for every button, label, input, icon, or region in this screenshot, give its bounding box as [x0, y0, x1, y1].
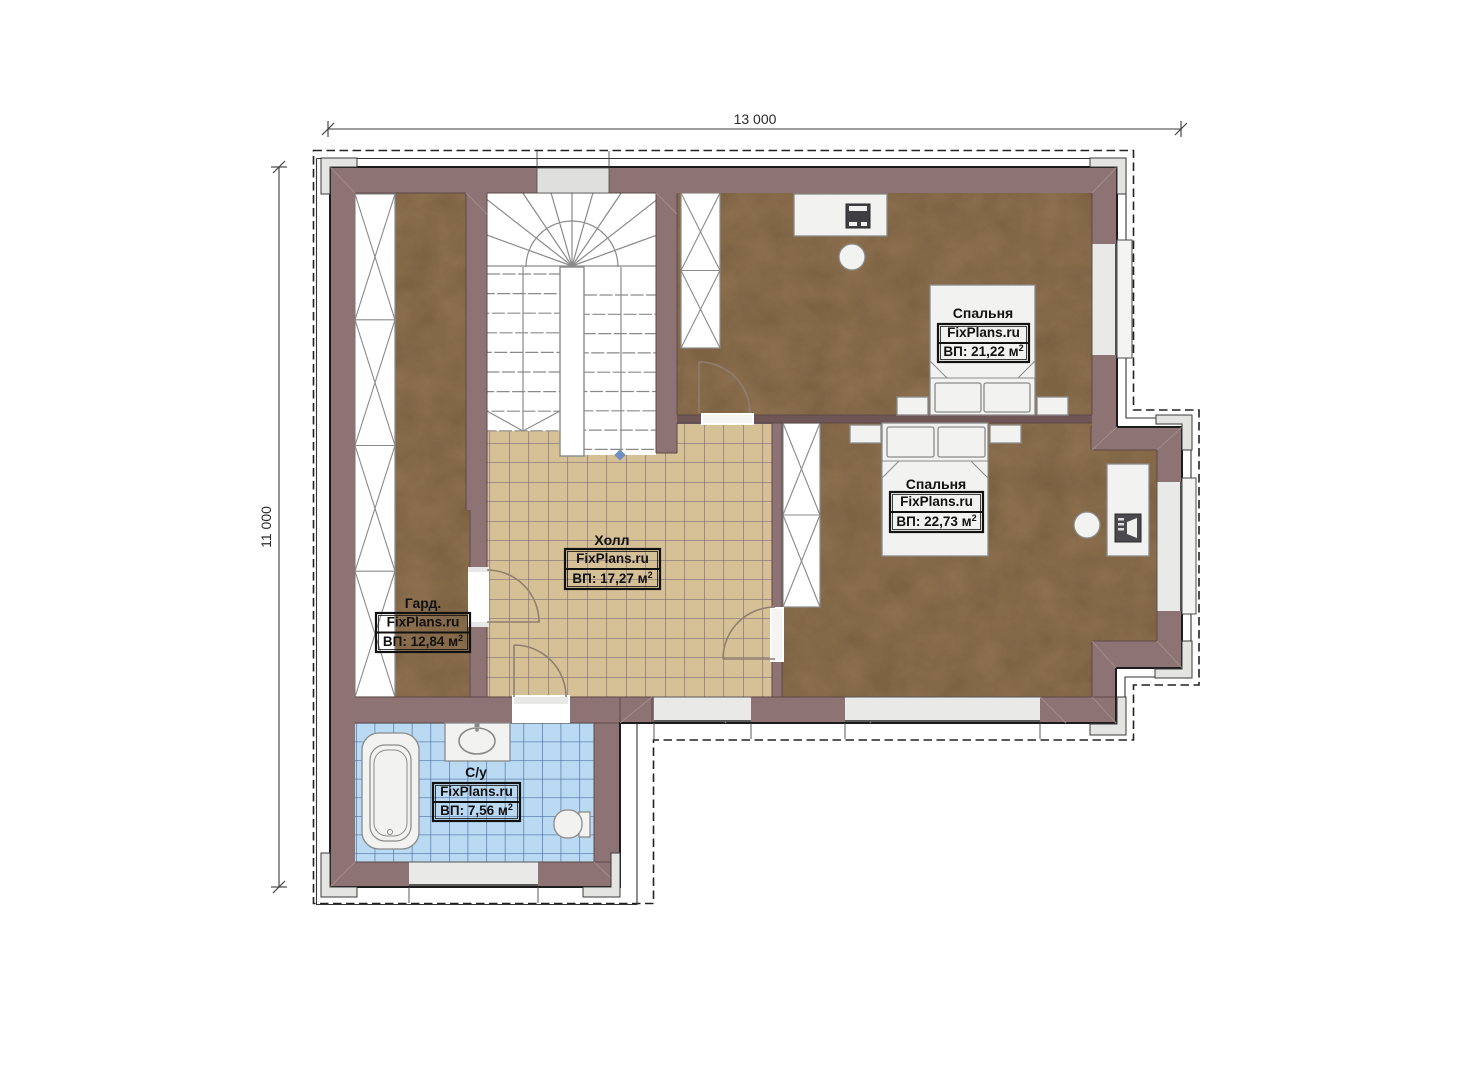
svg-text:11 000: 11 000 [258, 506, 274, 548]
svg-text:FixPlans.ru: FixPlans.ru [576, 551, 649, 566]
svg-text:FixPlans.ru: FixPlans.ru [900, 494, 973, 509]
svg-text:Холл: Холл [594, 532, 629, 548]
svg-text:Спальня: Спальня [953, 305, 1013, 321]
svg-text:ВП: 17,27 м2: ВП: 17,27 м2 [572, 570, 652, 586]
svg-text:С/у: С/у [465, 764, 487, 780]
svg-text:FixPlans.ru: FixPlans.ru [440, 784, 513, 799]
svg-text:ВП: 7,56 м2: ВП: 7,56 м2 [440, 802, 513, 818]
svg-text:13 000: 13 000 [734, 111, 777, 127]
svg-text:Спальня: Спальня [906, 476, 966, 492]
svg-text:ВП: 22,73 м2: ВП: 22,73 м2 [896, 513, 976, 529]
svg-text:ВП: 21,22 м2: ВП: 21,22 м2 [943, 343, 1023, 359]
svg-text:FixPlans.ru: FixPlans.ru [387, 615, 460, 630]
svg-text:Гард.: Гард. [405, 595, 442, 611]
svg-text:FixPlans.ru: FixPlans.ru [947, 325, 1020, 340]
svg-text:ВП: 12,84 м2: ВП: 12,84 м2 [383, 633, 463, 649]
